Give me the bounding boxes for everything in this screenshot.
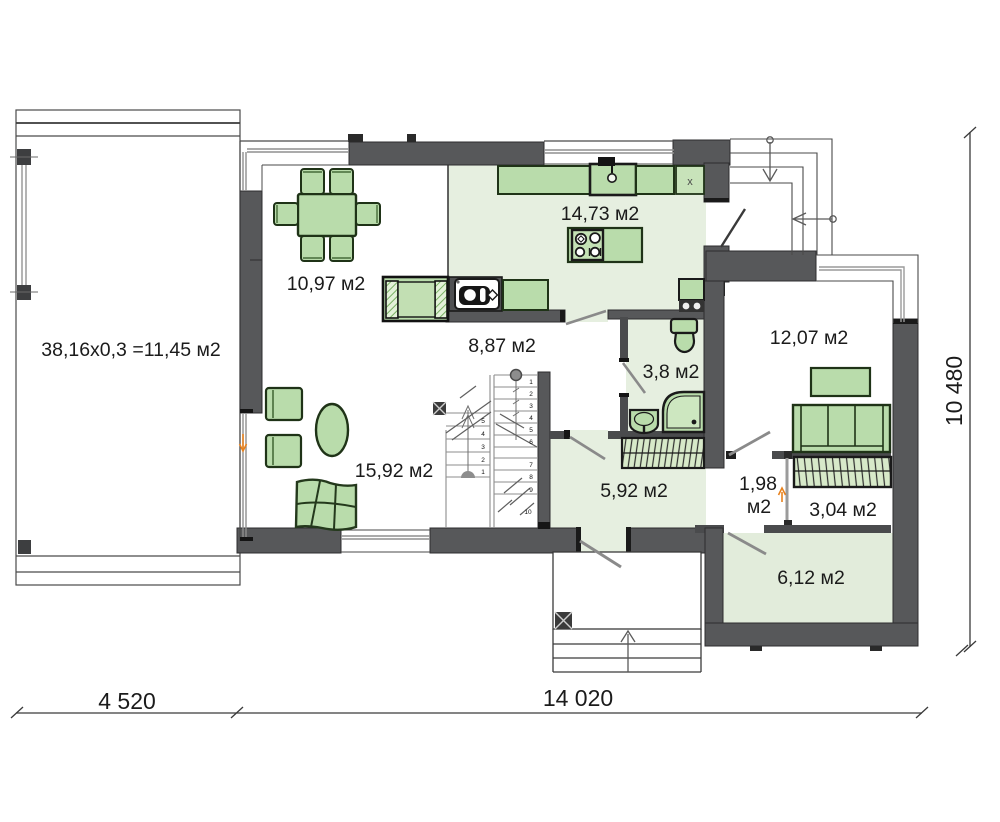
- svg-text:6,12 м2: 6,12 м2: [777, 567, 845, 589]
- svg-text:3: 3: [529, 403, 533, 410]
- svg-text:x: x: [687, 176, 693, 188]
- svg-text:1,98: 1,98: [739, 473, 777, 495]
- svg-text:4: 4: [529, 415, 533, 422]
- svg-text:6: 6: [529, 439, 533, 446]
- svg-text:15,92 м2: 15,92 м2: [355, 460, 433, 482]
- svg-text:2: 2: [529, 391, 533, 398]
- svg-text:14,73 м2: 14,73 м2: [561, 203, 639, 225]
- svg-text:4 520: 4 520: [98, 688, 156, 714]
- svg-text:12,07 м2: 12,07 м2: [770, 327, 848, 349]
- svg-text:5,92 м2: 5,92 м2: [600, 480, 668, 502]
- svg-text:7: 7: [529, 462, 533, 469]
- svg-text:5: 5: [529, 427, 533, 434]
- svg-text:4: 4: [481, 431, 485, 438]
- svg-text:8: 8: [529, 474, 533, 481]
- svg-text:8,87 м2: 8,87 м2: [468, 335, 536, 357]
- svg-text:10,97 м2: 10,97 м2: [287, 273, 365, 295]
- svg-text:м2: м2: [747, 496, 771, 518]
- svg-text:3,8 м2: 3,8 м2: [643, 361, 700, 383]
- svg-text:38,16x0,3 =11,45 м2: 38,16x0,3 =11,45 м2: [41, 339, 220, 361]
- svg-text:1: 1: [529, 379, 533, 386]
- svg-text:5: 5: [481, 418, 485, 425]
- svg-text:10: 10: [524, 509, 532, 516]
- svg-text:10 480: 10 480: [941, 356, 967, 426]
- svg-text:3: 3: [481, 444, 485, 451]
- svg-text:3,04 м2: 3,04 м2: [809, 499, 877, 521]
- svg-text:14 020: 14 020: [543, 685, 613, 711]
- svg-text:2: 2: [481, 457, 485, 464]
- svg-text:9: 9: [529, 487, 533, 494]
- svg-text:1: 1: [481, 469, 485, 476]
